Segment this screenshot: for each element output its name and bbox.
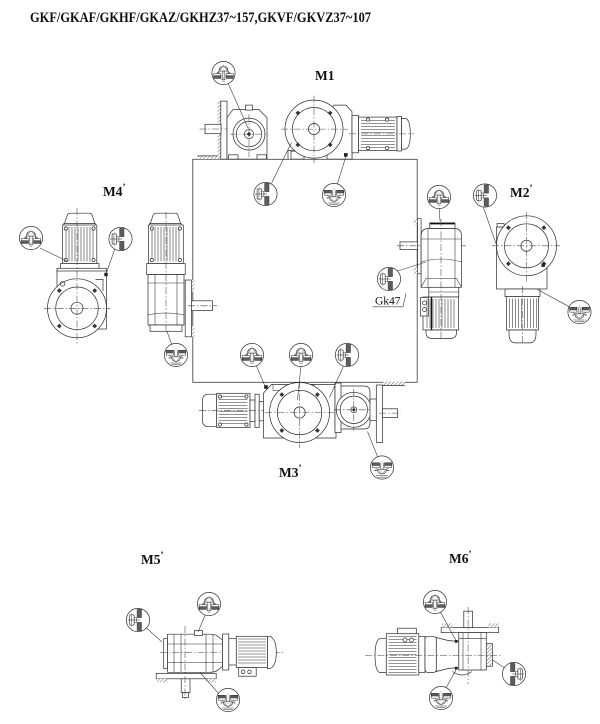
svg-text:M3ʼ: M3ʼ xyxy=(279,463,302,480)
svg-text:M5ʼ: M5ʼ xyxy=(141,550,164,567)
svg-text:Gk47: Gk47 xyxy=(375,296,401,308)
svg-text:M6ʼ: M6ʼ xyxy=(449,549,472,566)
svg-text:GKF/GKAF/GKHF/GKAZ/GKHZ37~157,: GKF/GKAF/GKHF/GKAZ/GKHZ37~157,GKVF/GKVZ3… xyxy=(30,10,371,26)
svg-text:M1: M1 xyxy=(315,68,335,83)
svg-text:M2ʼ: M2ʼ xyxy=(510,183,533,200)
svg-text:M4ʼ: M4ʼ xyxy=(103,182,126,199)
